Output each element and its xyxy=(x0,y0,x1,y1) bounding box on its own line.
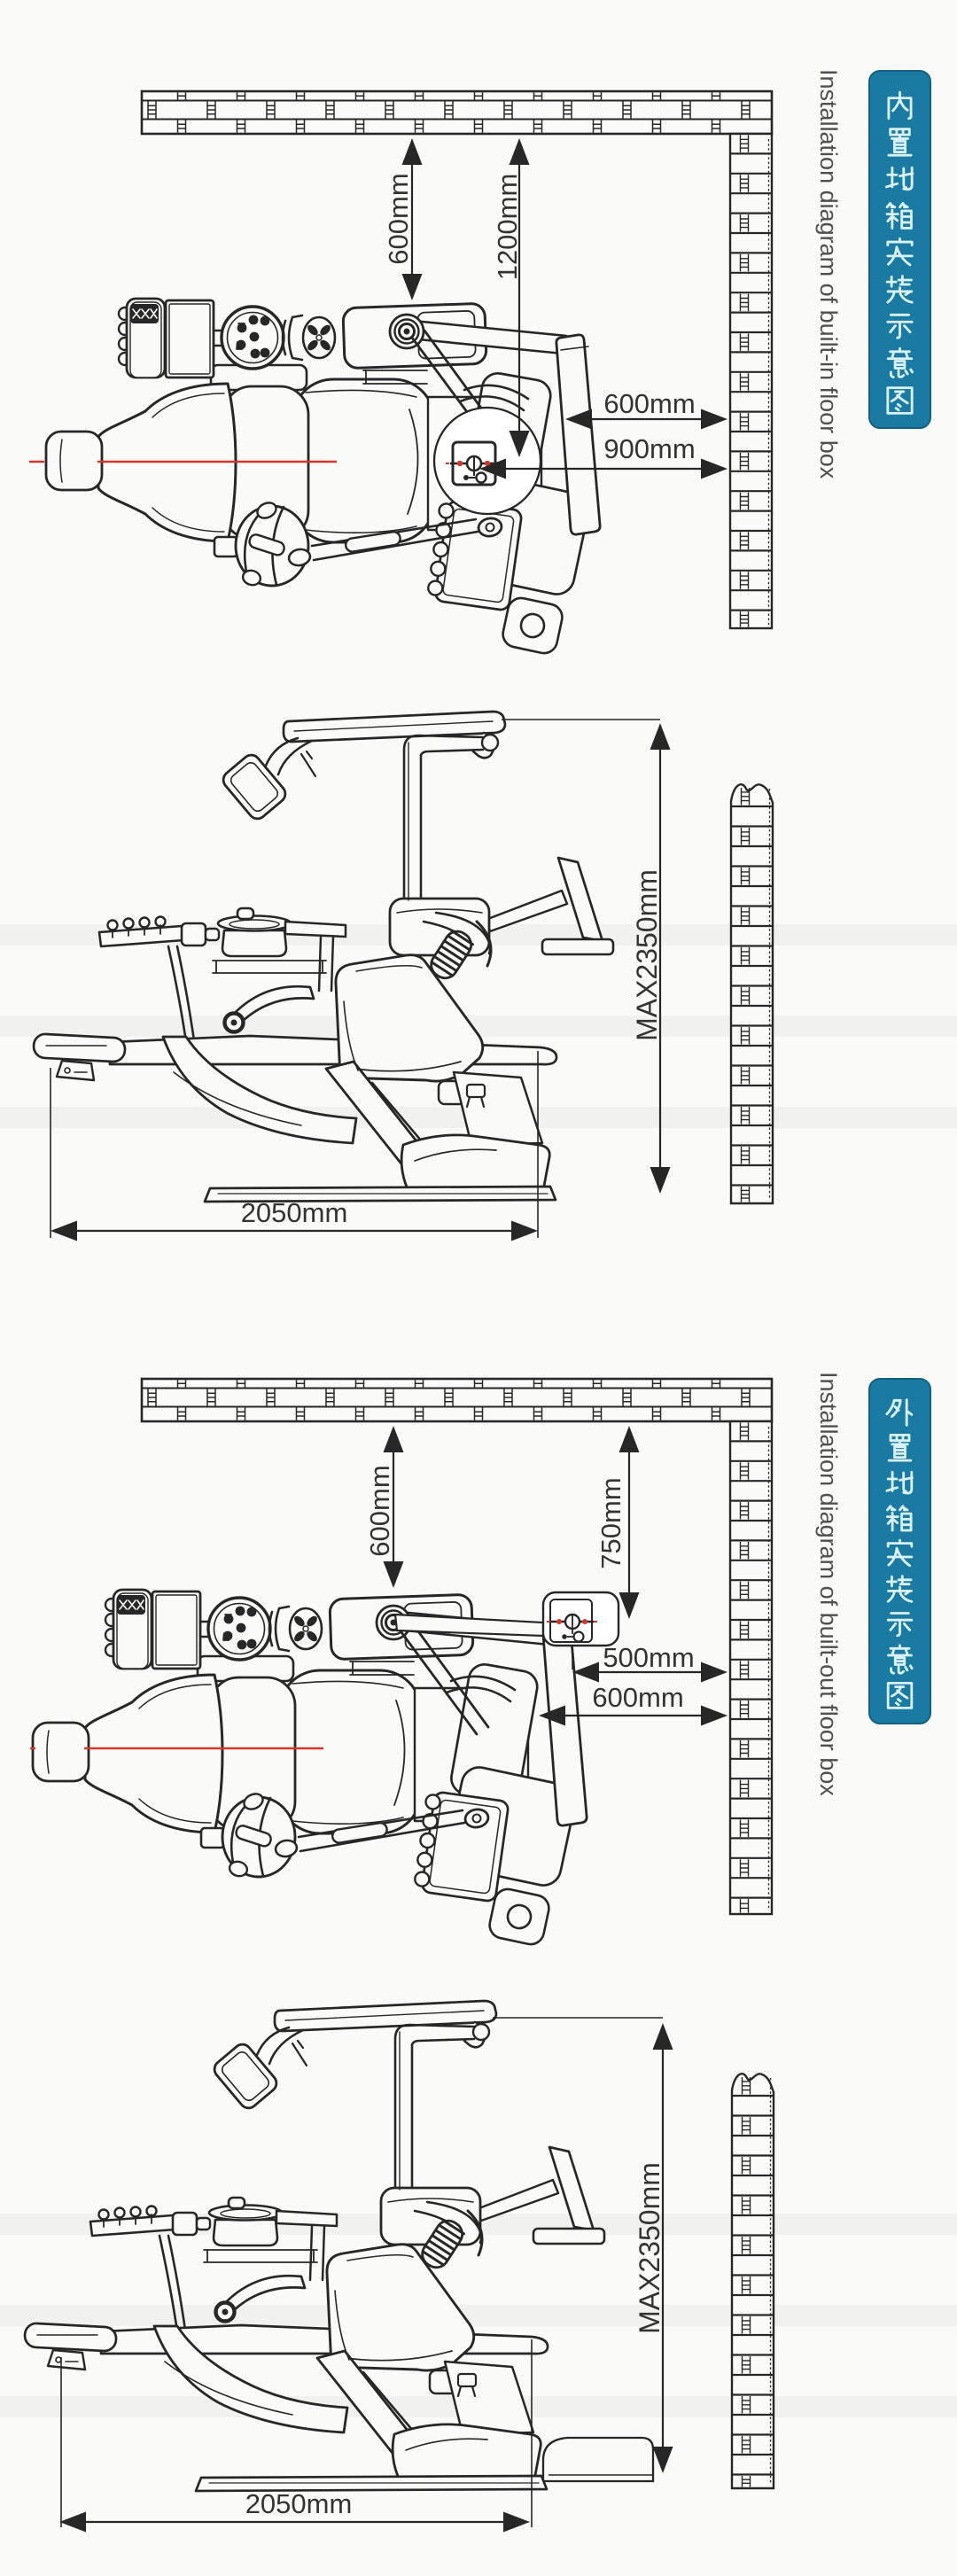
svg-text:MAX2350mm: MAX2350mm xyxy=(631,869,663,1041)
svg-text:500mm: 500mm xyxy=(603,1642,694,1673)
svg-text:750mm: 750mm xyxy=(595,1477,626,1568)
svg-text:1200mm: 1200mm xyxy=(492,174,523,281)
svg-text:900mm: 900mm xyxy=(603,433,695,464)
svg-text:2050mm: 2050mm xyxy=(245,2488,353,2519)
svg-text:2050mm: 2050mm xyxy=(241,1197,348,1228)
svg-text:600mm: 600mm xyxy=(364,1465,395,1556)
svg-text:Installation diagram of built-: Installation diagram of built-in floor b… xyxy=(815,69,842,479)
svg-text:600mm: 600mm xyxy=(592,1682,683,1713)
svg-text:Installation diagram of built-: Installation diagram of built-out floor … xyxy=(815,1372,842,1796)
svg-text:600mm: 600mm xyxy=(383,173,414,264)
svg-text:MAX2350mm: MAX2350mm xyxy=(634,2162,665,2334)
svg-text:600mm: 600mm xyxy=(603,388,695,419)
